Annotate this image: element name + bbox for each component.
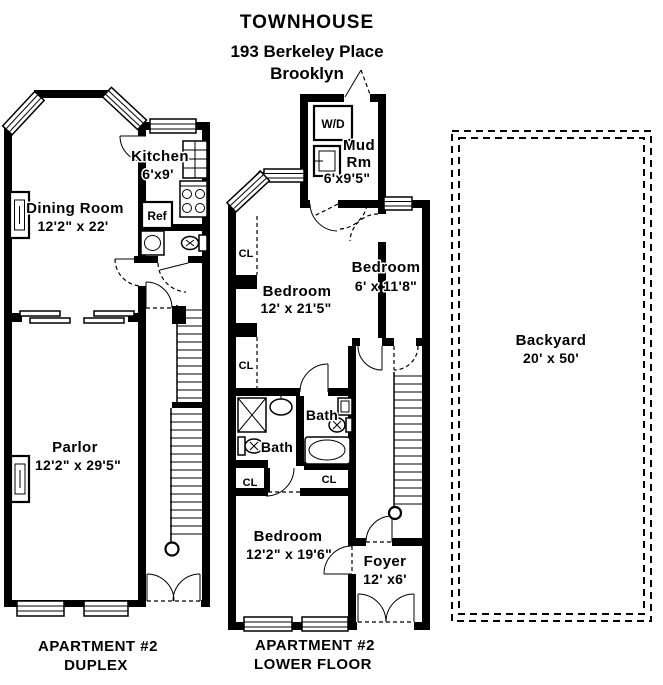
backyard-inner-boundary bbox=[459, 138, 644, 614]
bedroom2-hall-door-icon bbox=[394, 346, 418, 370]
bath1-toilet-icon bbox=[238, 437, 263, 455]
ref-label: Ref bbox=[147, 209, 167, 223]
entry-double-doors-icon bbox=[357, 594, 414, 630]
parlor-dims: 12'2" x 29'5" bbox=[35, 457, 121, 473]
bedroom1-dims: 12' x 21'5" bbox=[260, 300, 331, 316]
mudroom-entry-door-icon bbox=[345, 70, 371, 97]
duplex-caption-line2: DUPLEX bbox=[64, 657, 128, 674]
mud-room-label-line2: Rm bbox=[347, 154, 372, 171]
stove-icon bbox=[180, 181, 207, 217]
bedroom3-dims: 12'2" x 19'6" bbox=[246, 546, 332, 562]
kitchen-window-icon bbox=[150, 119, 196, 133]
powder-toilet-icon bbox=[182, 235, 208, 251]
bath2-sink-icon bbox=[338, 398, 352, 415]
parlor-window-right-icon bbox=[84, 601, 128, 616]
backyard-outer-boundary bbox=[452, 131, 651, 621]
bedroom1-label: Bedroom bbox=[263, 283, 332, 300]
duplex-plan: Kitchen 6'x9' Ref Dining Room 12'2" x 22… bbox=[3, 87, 210, 674]
lower-caption-line2: LOWER FLOOR bbox=[254, 656, 372, 673]
bay-window-left-icon bbox=[3, 92, 45, 135]
kitchen-dims: 6'x9' bbox=[142, 166, 174, 182]
parlor-window-left-icon bbox=[17, 601, 64, 616]
bedroom1-hall-door-icon bbox=[358, 346, 382, 370]
bedroom2-label: Bedroom bbox=[352, 259, 421, 276]
bath1-sink-icon bbox=[270, 396, 292, 415]
stair-top-door-icon bbox=[146, 282, 172, 308]
dining-hall-door-icon bbox=[115, 259, 142, 286]
bedroom2-dims: 6' x 11'8" bbox=[355, 278, 417, 294]
mud-room-dims: 6'x9'5" bbox=[324, 170, 371, 186]
dining-room-dims: 12'2" x 22' bbox=[37, 218, 108, 234]
bedroom3-label: Bedroom bbox=[254, 528, 323, 545]
mud-room-label-line1: Mud bbox=[343, 137, 375, 154]
closet2-label: CL bbox=[239, 360, 254, 372]
parlor-label: Parlor bbox=[52, 439, 98, 456]
bedroom2-window-icon bbox=[384, 197, 412, 210]
dining-room-label: Dining Room bbox=[26, 200, 124, 217]
kitchen-label: Kitchen bbox=[131, 148, 189, 165]
lower-floor-plan: W/D Mud Rm 6'x9'5" CL CL Bedroom 12' x 2… bbox=[227, 70, 430, 673]
bedroom-divider-door-icon bbox=[350, 214, 378, 241]
mudroom-door-icon bbox=[310, 204, 367, 231]
lower-bay-window-icon bbox=[227, 171, 270, 212]
bath2-label: Bath bbox=[306, 407, 338, 423]
address-line: 193 Berkeley Place bbox=[230, 42, 383, 61]
backyard: Backyard 20' x 50' bbox=[452, 131, 651, 621]
closet3-label: CL bbox=[243, 477, 258, 489]
foyer-dims: 12' x6' bbox=[363, 571, 407, 587]
shower-icon bbox=[238, 398, 266, 432]
closet1-label: CL bbox=[239, 248, 254, 260]
lower-caption-line1: APARTMENT #2 bbox=[255, 637, 375, 654]
duplex-caption-line1: APARTMENT #2 bbox=[38, 638, 158, 655]
hall-foyer-door-icon bbox=[366, 516, 392, 542]
bedroom3-window-left-icon bbox=[244, 617, 292, 631]
backyard-dims: 20' x 50' bbox=[523, 350, 579, 366]
bedroom3-window-right-icon bbox=[302, 617, 348, 631]
floor-plan-canvas: TOWNHOUSE 193 Berkeley Place Brooklyn bbox=[0, 0, 663, 685]
newel-post-icon bbox=[166, 543, 179, 556]
duplex-staircase bbox=[166, 305, 204, 556]
bathtub-icon bbox=[305, 437, 350, 464]
pocket-doors-icon bbox=[20, 311, 134, 323]
powder-sink-icon bbox=[141, 231, 164, 255]
foyer-label: Foyer bbox=[364, 553, 407, 570]
bath2-door-icon bbox=[300, 364, 328, 392]
newel-post-icon bbox=[389, 507, 401, 519]
page-title: TOWNHOUSE bbox=[240, 12, 374, 33]
closet4-label: CL bbox=[322, 474, 337, 486]
french-doors-icon bbox=[146, 574, 201, 609]
bath1-label: Bath bbox=[261, 439, 293, 455]
floor-plan-page: TOWNHOUSE 193 Berkeley Place Brooklyn bbox=[0, 0, 663, 685]
bedroom1-top-window-icon bbox=[264, 169, 304, 182]
parlor-fireplace-icon bbox=[11, 456, 29, 502]
washer-dryer-label: W/D bbox=[321, 117, 345, 131]
bay-window-right-icon bbox=[103, 87, 147, 129]
backyard-label: Backyard bbox=[516, 332, 587, 349]
lower-staircase bbox=[389, 372, 422, 519]
duplex-walls bbox=[4, 90, 210, 607]
header: TOWNHOUSE 193 Berkeley Place Brooklyn bbox=[230, 12, 383, 83]
city-line: Brooklyn bbox=[270, 64, 344, 83]
